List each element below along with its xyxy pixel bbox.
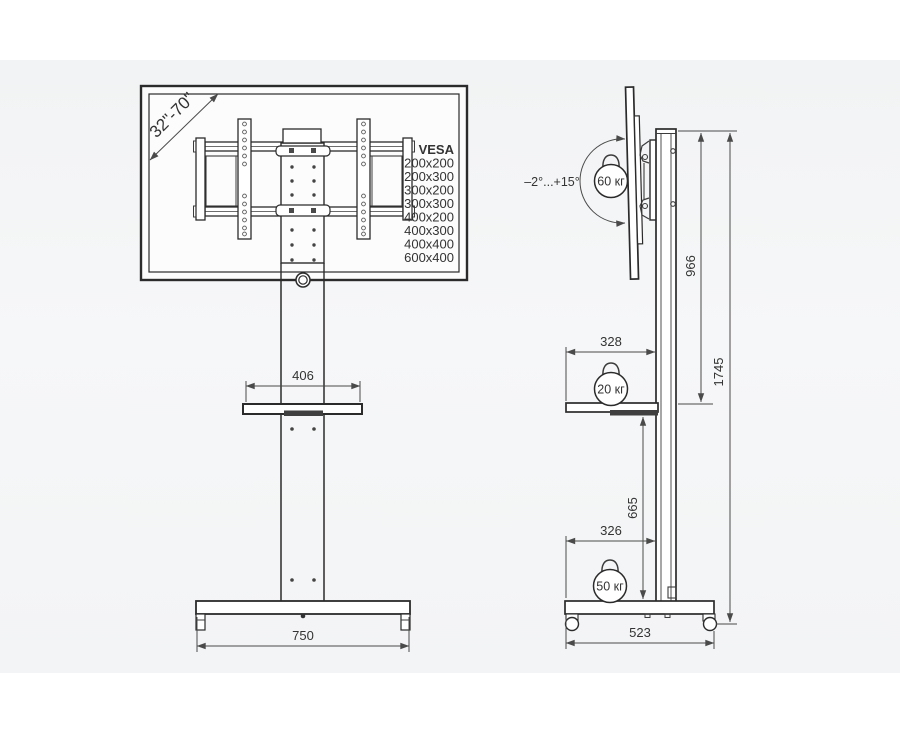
base-front	[196, 601, 410, 614]
rail-end-cap-left	[196, 138, 205, 220]
vesa-strip-right	[357, 119, 370, 239]
front-view: 32"-70"	[141, 86, 467, 652]
tilt-bracket-side	[640, 140, 657, 220]
tv-bottom-cap	[296, 273, 310, 287]
dim-bracket-height: 966	[678, 133, 713, 404]
dim-label: 1745	[711, 358, 726, 387]
dim-label: 328	[600, 334, 622, 349]
dim-label: 750	[292, 628, 314, 643]
side-view: –2°...+15° 60 кг 20 кг 50 кг	[524, 87, 737, 649]
dim-label: 665	[625, 497, 640, 519]
tilt-range-label: –2°...+15°	[524, 175, 580, 189]
dim-label: 326	[600, 523, 622, 538]
upper-slot	[276, 146, 330, 156]
dim-label: 966	[683, 255, 698, 277]
diagram-svg: 32"-70"	[0, 0, 900, 737]
vesa-size: 600x400	[404, 250, 454, 265]
column-side	[656, 129, 676, 602]
dim-base-depth: 523	[566, 619, 714, 649]
dim-shelf-width: 406	[246, 368, 360, 402]
tv-side-panel	[626, 87, 644, 279]
dim-label: 523	[629, 625, 651, 640]
dim-base-width: 750	[197, 617, 409, 652]
product-dimension-diagram: 32"-70"	[0, 0, 900, 737]
base-screw	[301, 614, 306, 619]
shelf-bracket-side	[610, 410, 658, 416]
base-side	[565, 601, 714, 614]
caster-side-left	[566, 614, 579, 631]
kettlebell-50kg-label: 50 кг	[596, 580, 624, 594]
lower-slot	[276, 205, 330, 216]
plate-top-box	[283, 129, 321, 143]
center-column-front	[281, 280, 324, 601]
kettlebell-60kg-icon: 60 кг	[595, 155, 628, 198]
dim-label: 406	[292, 368, 314, 383]
dim-shelf-to-base: 665	[625, 417, 643, 599]
shelf-bracket-front	[284, 411, 323, 417]
vesa-list: VESA 200x200 200x300 300x200 300x300 400…	[404, 142, 454, 265]
kettlebell-20kg-label: 20 кг	[597, 383, 625, 397]
column-plate	[281, 143, 324, 263]
kettlebell-50kg-icon: 50 кг	[594, 560, 627, 603]
dim-total-height: 1745	[711, 133, 737, 624]
kettlebell-20kg-icon: 20 кг	[595, 363, 628, 406]
caster-side-right	[703, 614, 717, 631]
vesa-strip-left	[238, 119, 251, 239]
kettlebell-60kg-label: 60 кг	[597, 175, 625, 189]
